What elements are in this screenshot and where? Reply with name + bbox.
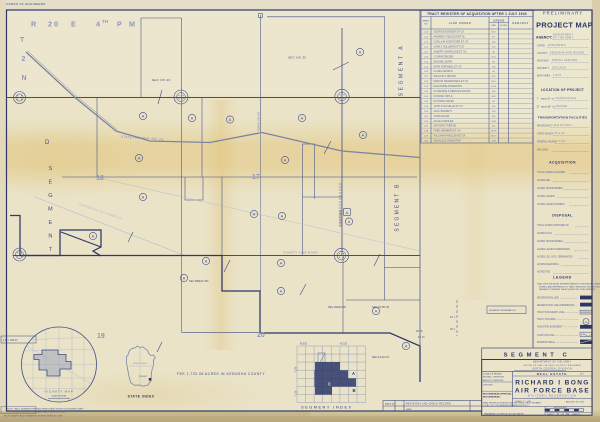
svg-text:110.4: 110.4	[491, 86, 497, 88]
svg-text:TOTAL ACRES DISPOSED OF: TOTAL ACRES DISPOSED OF	[537, 224, 569, 227]
svg-text:A: A	[284, 158, 287, 163]
svg-text:LAND OWNER: LAND OWNER	[449, 21, 472, 25]
svg-text:SCALE IN MILES: SCALE IN MILES	[52, 395, 68, 398]
svg-text:C M ST P RR: C M ST P RR	[339, 210, 343, 226]
svg-text:OF THE ARMY: OF THE ARMY	[553, 37, 574, 40]
svg-text:1 IN = 400 FT: 1 IN = 400 FT	[3, 339, 18, 342]
svg-text:COUNTY: COUNTY	[537, 51, 548, 55]
svg-text:30' 1: 30' 1	[450, 329, 456, 331]
svg-text:KANSASVILLE: KANSASVILLE	[556, 97, 576, 100]
svg-text:SHEET: SHEET	[547, 414, 555, 416]
svg-text:MICHAEL J PERRONE: MICHAEL J PERRONE	[483, 376, 504, 379]
svg-text:DISPOSAL: DISPOSAL	[552, 214, 573, 218]
svg-text:AUGUST 30, 1951: AUGUST 30, 1951	[566, 401, 585, 404]
svg-text:MICHAEL BURG: MICHAEL BURG	[434, 60, 453, 63]
svg-text:ACRES TRANSFERRED: ACRES TRANSFERRED	[537, 240, 563, 243]
svg-text:SEGMENT A: SEGMENT A	[399, 44, 405, 96]
svg-text:STATE INDEX: STATE INDEX	[128, 395, 155, 399]
svg-text:ACRES LEASE INTEREST: ACRES LEASE INTEREST	[537, 203, 566, 206]
svg-text:CLARA GEHRLS: CLARA GEHRLS	[434, 70, 454, 73]
svg-text:SEC 29&30 RD: SEC 29&30 RD	[328, 305, 346, 309]
svg-text:A: A	[191, 116, 194, 121]
svg-text:40' 13: 40' 13	[416, 330, 423, 333]
svg-text:PREPARED IN OFFICE OF DIST ENG: PREPARED IN OFFICE OF DIST ENGR	[484, 413, 524, 416]
svg-text:ALICE KOEHLER: ALICE KOEHLER	[434, 120, 454, 123]
svg-text:A: A	[405, 344, 408, 349]
svg-text:FEE: FEE	[491, 25, 496, 27]
svg-text:C: C	[328, 382, 331, 387]
svg-text:NORTH CENTRAL: NORTH CENTRAL	[552, 58, 578, 62]
svg-text:A: A	[362, 133, 365, 138]
svg-text:LOCAL COPY OF DRAWINGS WASHING: LOCAL COPY OF DRAWINGS WASHINGTON 25 D.C…	[483, 404, 530, 407]
svg-text:A: A	[359, 50, 362, 55]
svg-text:SEC BREAK RD: SEC BREAK RD	[189, 279, 208, 283]
svg-text:SEC 19-20 CO: SEC 19-20 CO	[372, 355, 389, 359]
svg-text:DONALD E PARKER: DONALD E PARKER	[483, 372, 502, 375]
svg-text:NORTH CENTRAL DIVISION: NORTH CENTRAL DIVISION	[532, 367, 572, 370]
svg-text:40' 1: 40' 1	[450, 317, 456, 319]
svg-text:SYMBOL AND REFERENCE TO TRACT: SYMBOL AND REFERENCE TO TRACT REGISTER S…	[539, 285, 600, 288]
svg-text:CHICAGO: CHICAGO	[552, 66, 566, 70]
svg-text:WISCONSIN: WISCONSIN	[548, 43, 566, 47]
svg-text:REVISIONS AND CHECK RECORD: REVISIONS AND CHECK RECORD	[406, 403, 451, 406]
svg-text:U S 45: U S 45	[556, 140, 565, 143]
svg-text:400 0 400 800: 400 0 400 800	[554, 407, 568, 409]
svg-text:A: A	[301, 116, 304, 121]
svg-text:PRELIMINARY: PRELIMINARY	[543, 11, 583, 16]
svg-text:T 1 N: T 1 N	[296, 391, 298, 397]
svg-text:GEORGE BONGER ET UX: GEORGE BONGER ET UX	[434, 31, 465, 34]
svg-text:AVIGATION EASEMENT: AVIGATION EASEMENT	[537, 325, 563, 328]
svg-text:17: 17	[252, 174, 260, 181]
svg-text:VICINITY MAP: VICINITY MAP	[45, 390, 74, 394]
svg-text:155.7: 155.7	[491, 136, 497, 138]
svg-text:ANTHONY PIERSKI: ANTHONY PIERSKI	[434, 125, 457, 128]
svg-text:WISCONSIN: WISCONSIN	[133, 363, 148, 365]
svg-text:RAILROADS: RAILROADS	[537, 125, 551, 128]
svg-text:AGENCY:: AGENCY:	[536, 36, 552, 40]
svg-text:CHECKED:: CHECKED:	[483, 384, 494, 386]
svg-text:PROJECT: PROJECT	[139, 376, 148, 378]
svg-text:PHOTOGRAPHY AND PLANIMETRY BY: PHOTOGRAPHY AND PLANIMETRY BY AERO SERVI…	[4, 414, 63, 417]
svg-text:A: A	[348, 219, 351, 224]
svg-text:WILLIAM C MEYER: WILLIAM C MEYER	[434, 75, 457, 78]
svg-text:A: A	[281, 214, 284, 219]
svg-text:SEGMENT B: SEGMENT B	[395, 182, 401, 231]
svg-text:NO: NO	[424, 24, 428, 26]
svg-text:R 20 E: R 20 E	[300, 344, 307, 346]
svg-text:B: B	[353, 388, 356, 393]
svg-text:(COST): (COST)	[500, 25, 508, 27]
svg-text:RICHARD I BONG: RICHARD I BONG	[515, 379, 590, 386]
svg-text:TRACT REGISTER OF ACQUISITION: TRACT REGISTER OF ACQUISITION AFTER 1 JU…	[427, 12, 527, 16]
svg-text:DATE: DATE	[406, 408, 412, 411]
svg-text:WILLIAM M MULLEN ET UX: WILLIAM M MULLEN ET UX	[434, 135, 466, 138]
svg-text:JOHN & NOVELLE ET UX: JOHN & NOVELLE ET UX	[434, 105, 464, 108]
svg-text:75 & 43: 75 & 43	[554, 132, 565, 135]
svg-text:SEGMENT INFORMATION: SEGMENT INFORMATION	[489, 309, 516, 312]
svg-text:JACK BARNETT: JACK BARNETT	[434, 110, 453, 113]
svg-text:SEC NO 30: SEC NO 30	[288, 56, 306, 60]
svg-text:TRACT FIGURES: TRACT FIGURES	[537, 318, 556, 321]
svg-text:LOCATION OF PROJECT: LOCATION OF PROJECT	[541, 88, 584, 92]
svg-text:TRACT NOS ON INITIAL SEGMENT M: TRACT NOS ON INITIAL SEGMENT MAPS NOT SH…	[537, 283, 600, 286]
svg-text:ACRES FEE: ACRES FEE	[537, 271, 550, 274]
svg-text:CARL & M KOENITZER ET UX: CARL & M KOENITZER ET UX	[434, 40, 469, 43]
svg-text:MADE BY: MADE BY	[385, 403, 395, 406]
svg-text:FOR DETAILED DESCRIPTIONS SEE: FOR DETAILED DESCRIPTIONS SEE TRACT REGI…	[7, 410, 66, 413]
svg-text:TRANSPORTATION FACILITIES: TRANSPORTATION FACILITIES	[538, 116, 588, 120]
svg-text:REAL ESTATE: REAL ESTATE	[537, 372, 568, 376]
svg-text:TOWN LINE RD: TOWN LINE RD	[257, 112, 261, 132]
svg-text:JOHN J KOLLWING ET UX: JOHN J KOLLWING ET UX	[434, 45, 465, 48]
svg-text:J CHRISTENSEN: J CHRISTENSEN	[434, 55, 454, 58]
svg-text:ANDREW J NELSON ET AL: ANDREW J NELSON ET AL	[434, 36, 466, 39]
svg-text:COUNTY LINE ROAD: COUNTY LINE ROAD	[283, 251, 318, 255]
svg-text:RESERVATION LINE: RESERVATION LINE	[537, 297, 559, 300]
svg-text:AIR FORCE BASE: AIR FORCE BASE	[515, 387, 590, 394]
svg-text:A: A	[205, 259, 208, 264]
svg-text:A: A	[352, 371, 355, 376]
svg-text:A: A	[183, 276, 186, 281]
svg-text:C M & ST PAUL: C M & ST PAUL	[551, 124, 572, 127]
svg-text:BORROW AREA: BORROW AREA	[537, 341, 555, 344]
svg-text:ACRES LEASES TERMINATED: ACRES LEASES TERMINATED	[537, 248, 570, 251]
svg-text:DONALD B JOHNSTON: DONALD B JOHNSTON	[434, 140, 461, 143]
svg-text:79.67: 79.67	[491, 131, 497, 133]
svg-text:R 21 E: R 21 E	[340, 344, 347, 346]
svg-text:A: A	[585, 320, 587, 324]
svg-text:STATE ROADS: STATE ROADS	[537, 133, 553, 136]
svg-text:T 2 N: T 2 N	[296, 367, 298, 373]
svg-text:ARNOLD J PERRONE: ARNOLD J PERRONE	[483, 379, 504, 382]
svg-text:SEGMENT C: SEGMENT C	[504, 353, 571, 359]
svg-text:RECOMMENDED:: RECOMMENDED:	[483, 396, 501, 398]
svg-text:A: A	[138, 156, 141, 161]
svg-text:ACRES SOLD: ACRES SOLD	[537, 232, 552, 235]
svg-text:ELEANORE ANDERSON: ELEANORE ANDERSON	[434, 85, 463, 88]
svg-text:ACRES LEASED: ACRES LEASED	[537, 195, 555, 198]
svg-text:SEC NO 40: SEC NO 40	[152, 78, 170, 82]
svg-text:RECOMMENDED APPROVAL: RECOMMENDED APPROVAL	[483, 392, 512, 395]
svg-text:DIVISION: DIVISION	[537, 59, 549, 63]
svg-text:A: A	[346, 210, 349, 215]
svg-text:SEC 32 RD 30: SEC 32 RD 30	[372, 305, 390, 309]
svg-text:A: A	[142, 195, 145, 200]
svg-text:ACRES FEE: ACRES FEE	[537, 179, 550, 182]
svg-text:20: 20	[257, 332, 265, 339]
svg-text:ACQUISITION: ACQUISITION	[549, 161, 576, 165]
svg-text:A: A	[229, 117, 232, 122]
svg-text:AIR LINES: AIR LINES	[537, 149, 549, 152]
svg-text:40' 13: 40' 13	[418, 336, 425, 339]
svg-text:FRED WEINERS ET UX: FRED WEINERS ET UX	[434, 130, 462, 133]
svg-text:RICHARD MALEK: RICHARD MALEK	[434, 100, 455, 103]
svg-text:ACRES TRANSFERRED: ACRES TRANSFERRED	[537, 187, 563, 190]
svg-text:ACRES LSE. INTS. TERMINATED: ACRES LSE. INTS. TERMINATED	[537, 256, 573, 259]
svg-text:RACINE: RACINE	[556, 105, 567, 108]
svg-text:ALBERT GANROUGE ET UX: ALBERT GANROUGE ET UX	[434, 50, 467, 53]
svg-text:SEGMENT INDEX: SEGMENT INDEX	[301, 405, 353, 410]
svg-text:SHEETS: SHEETS	[572, 414, 581, 416]
svg-text:RESERVATION LINE (PERIMETER): RESERVATION LINE (PERIMETER)	[537, 304, 575, 307]
svg-text:A: A	[375, 309, 378, 314]
svg-text:A: A	[280, 289, 283, 294]
svg-text:FEE 1,733.08 ACRES IN KENO: FEE 1,733.08 ACRES IN KENOSHA COUNTY	[177, 372, 265, 376]
svg-text:A: A	[253, 212, 256, 217]
svg-text:KENOSHA AND RACINE: KENOSHA AND RACINE	[550, 51, 585, 55]
svg-text:D: D	[45, 140, 50, 146]
svg-text:NOTE: TRACT NUMBERS PREFIXED H: NOTE: TRACT NUMBERS PREFIXED HEREON ARE …	[7, 407, 84, 410]
svg-text:JOHN EVANS: JOHN EVANS	[434, 115, 450, 118]
svg-text:STATE: STATE	[537, 44, 545, 48]
svg-text:18: 18	[96, 175, 104, 182]
svg-text:MARIUS SEVERINSEN ET UX: MARIUS SEVERINSEN ET UX	[434, 80, 469, 83]
svg-text:19: 19	[97, 333, 105, 340]
svg-text:DISTRICT: DISTRICT	[537, 66, 549, 70]
svg-text:CONTOUR LINE: CONTOUR LINE	[537, 335, 555, 337]
svg-text:ACRES REMAINING: ACRES REMAINING	[537, 263, 559, 266]
svg-text:REMARKS: REMARKS	[512, 21, 528, 25]
svg-text:TRACT BOUNDARY LINE: TRACT BOUNDARY LINE	[537, 311, 564, 314]
svg-text:CLARENCE & BERNICE EVANS: CLARENCE & BERNICE EVANS	[434, 90, 471, 93]
svg-text:MILITARY RESERVATION: MILITARY RESERVATION	[528, 395, 577, 398]
svg-text:A: A	[142, 114, 145, 119]
svg-text:A: A	[280, 261, 283, 266]
svg-text:SEGMENT COVERING THE ACQUISITI: SEGMENT COVERING THE ACQUISITION LISTED …	[539, 288, 595, 291]
svg-text:A: A	[92, 234, 95, 239]
svg-text:LEGEND: LEGEND	[553, 276, 572, 280]
svg-text:MAP AREA: MAP AREA	[537, 74, 550, 78]
svg-text:CONRAD NIHLS: CONRAD NIHLS	[434, 95, 453, 98]
svg-text:PROJECT MAP: PROJECT MAP	[536, 21, 593, 30]
svg-text:TOTAL ACRES ACQUIRED: TOTAL ACRES ACQUIRED	[537, 171, 566, 174]
svg-text:DEPARTMENT OF THE ARMY: DEPARTMENT OF THE ARMY	[533, 361, 572, 364]
svg-text:7,974: 7,974	[553, 73, 561, 77]
svg-text:FEDERAL ROADS: FEDERAL ROADS	[537, 141, 557, 144]
svg-text:ACREAGE: ACREAGE	[493, 19, 505, 22]
svg-text:IRVIN KORINKEL ET UX: IRVIN KORINKEL ET UX	[434, 65, 462, 68]
svg-text:TRACT: TRACT	[422, 20, 430, 23]
svg-text:CORPS OF ENGINEERS: CORPS OF ENGINEERS	[6, 2, 46, 6]
